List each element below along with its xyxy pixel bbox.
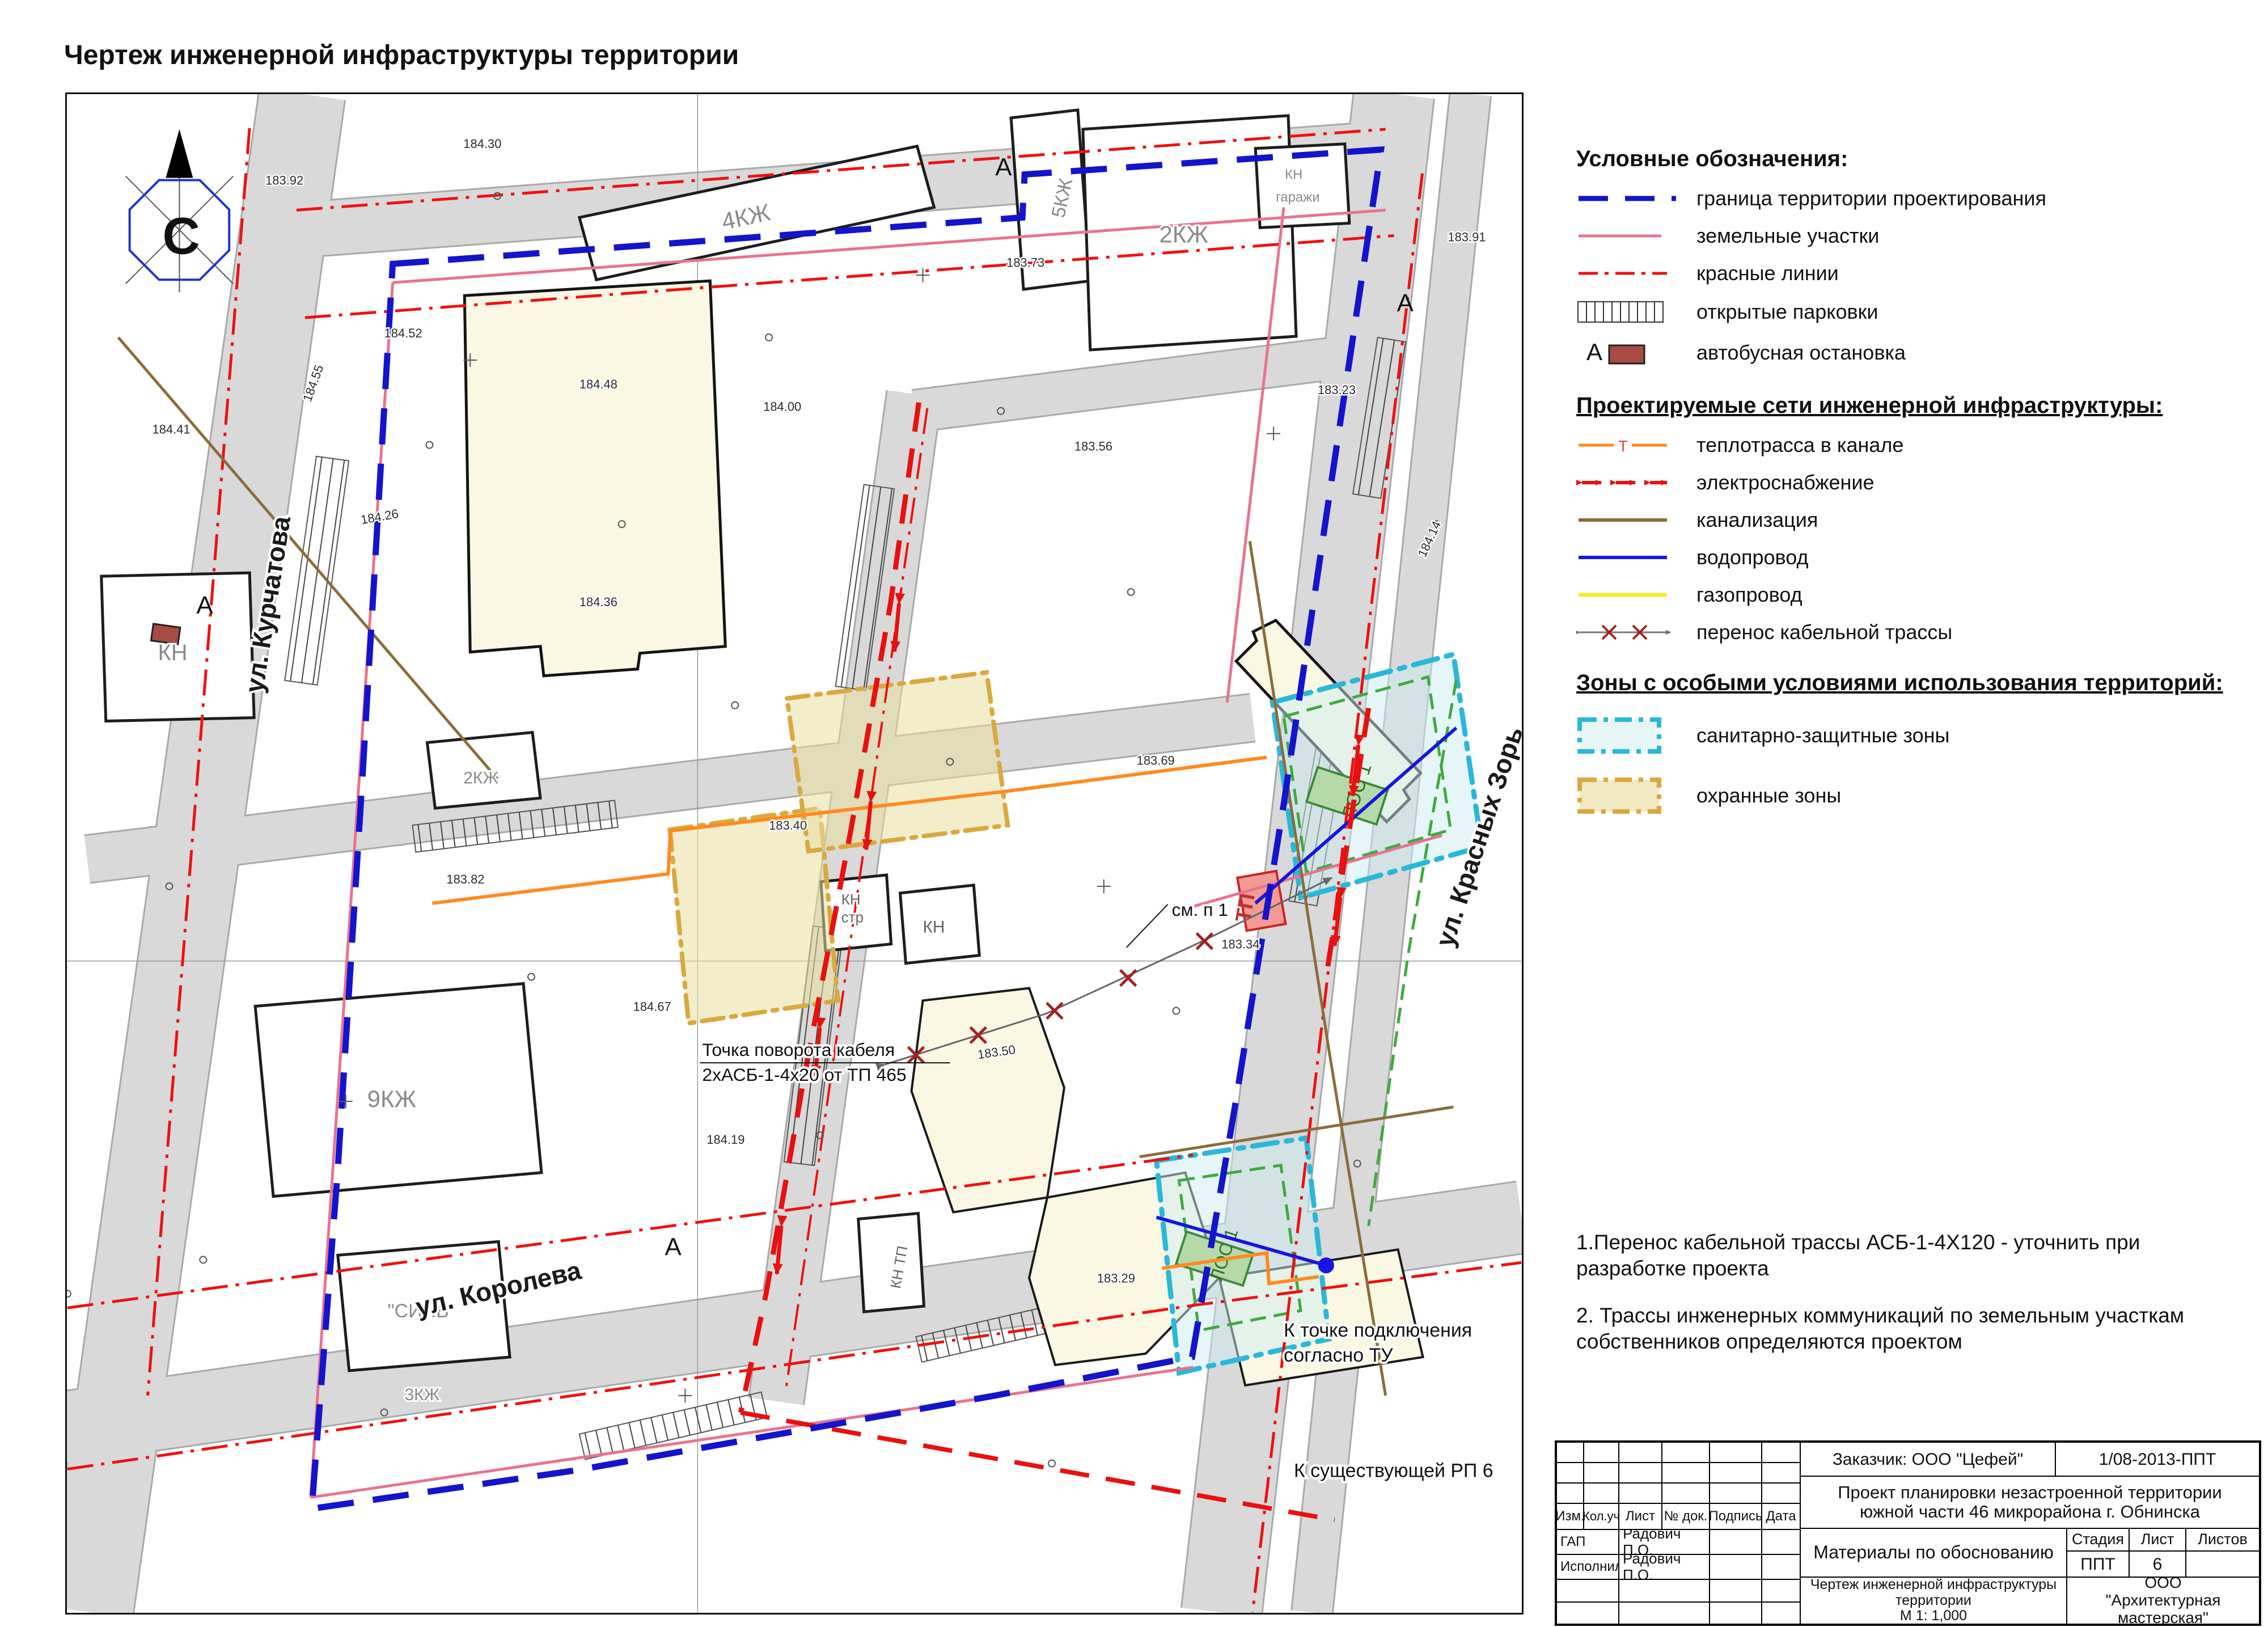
svg-text:Точка поворота кабеля: Точка поворота кабеля [702,1039,895,1060]
svg-text:184.00: 184.00 [763,400,801,414]
svg-text:184.19: 184.19 [706,1132,744,1147]
legend-section1-title: Условные обозначения: [1576,146,2262,172]
legend-item-heat: Т теплотрасса в канале [1576,433,2262,457]
legend-item-water: водопровод [1576,546,2262,569]
svg-text:КН: КН [158,640,188,665]
name-gap: Радович П.О. [1619,1529,1710,1554]
svg-text:2КЖ: 2КЖ [463,768,498,787]
svg-text:183.69: 183.69 [1137,753,1175,767]
role-gap: ГАП [1556,1529,1619,1554]
legend-item-busstop: А автобусная остановка [1576,339,2262,367]
doc-number-cell: 1/08-2013-ППТ [2055,1442,2259,1476]
title-block: Изм. Кол.уч Лист № док. Подпись Дата ГАП… [1555,1440,2261,1626]
col-data: Дата [1762,1503,1800,1529]
svg-text:гаражи: гаражи [1276,190,1320,205]
site-plan-map: ЛОС 1 ЛОС 1 ТП [65,92,1524,1615]
col-podpis: Подпись [1710,1503,1762,1529]
compass-north-letter: С [162,207,200,265]
stage-label-cell: Стадия [2067,1528,2129,1551]
svg-text:184.30: 184.30 [463,137,501,151]
legend-item-gas: газопровод [1576,583,2262,607]
col-ndok: № док. [1662,1503,1710,1529]
svg-text:КН: КН [923,918,945,937]
drawing-sheet: Чертеж инженерной инфраструктуры террито… [0,0,2268,1627]
page-title: Чертеж инженерной инфраструктуры террито… [64,40,739,71]
svg-text:183.92: 183.92 [265,174,303,188]
drawing-title-cell: Чертеж инженерной инфраструктуры террито… [1800,1577,2067,1624]
svg-text:183.29: 183.29 [1097,1271,1135,1285]
legend-panel: Условные обозначения: граница территории… [1576,146,2262,835]
legend-item-parking: открытые парковки [1576,299,2262,325]
water-line-icon [1576,551,1684,564]
legend-item-sewer: канализация [1576,508,2262,532]
legend-item-sanitary-zone: санитарно-защитные зоны [1576,715,2262,756]
note-1: 1.Перенос кабельной трассы АСБ-1-4Х120 -… [1576,1229,2254,1282]
col-koluch: Кол.уч [1584,1503,1619,1529]
sheets-value-cell [2186,1551,2259,1577]
legend-item-power: электроснабжение [1576,471,2262,495]
legend-section2-title: Проектируемые сети инженерной инфраструк… [1576,393,2262,419]
svg-text:А: А [1586,339,1602,365]
sewer-line-icon [1576,513,1684,527]
parcel-line-icon [1576,229,1684,243]
svg-text:согласно ТУ: согласно ТУ [1284,1345,1393,1366]
svg-text:3КЖ: 3КЖ [405,1385,440,1404]
svg-text:КН: КН [841,892,861,908]
bus-letter: А [1397,289,1414,317]
guard-zone-icon [1576,775,1684,816]
svg-text:184.52: 184.52 [384,326,422,340]
svg-text:183.56: 183.56 [1074,439,1112,454]
parking-hatch-icon [1576,299,1684,325]
svg-text:9КЖ: 9КЖ [367,1085,417,1112]
bus-letter: А [665,1233,682,1261]
sanitary-zone-icon [1576,715,1684,756]
legend-item-redlines: красные линии [1576,261,2262,285]
heat-line-icon: Т [1576,436,1684,454]
svg-text:184.67: 184.67 [633,999,671,1013]
note-2: 2. Трассы инженерных коммуникаций по зем… [1576,1303,2254,1355]
cable-transfer-icon [1576,622,1684,643]
col-izm: Изм. [1556,1503,1584,1529]
gas-line-icon [1576,588,1684,602]
svg-text:184.36: 184.36 [579,595,617,609]
sheets-label-cell: Листов [2186,1528,2259,1551]
svg-text:К существующей РП 6: К существующей РП 6 [1294,1460,1493,1482]
svg-text:184.48: 184.48 [579,377,617,391]
legend-item-guard-zone: охранные зоны [1576,775,2262,816]
sheet-value-cell: 6 [2129,1551,2186,1577]
materials-cell: Материалы по обоснованию [1800,1528,2067,1577]
site-plan-svg: ЛОС 1 ЛОС 1 ТП [67,94,1522,1613]
svg-text:184.41: 184.41 [153,422,191,437]
company-cell: ООО "Архитектурная мастерская" [2067,1577,2259,1624]
svg-text:2КЖ: 2КЖ [1160,221,1209,247]
svg-text:183.82: 183.82 [446,872,484,886]
customer-cell: Заказчик: ООО "Цефей" [1800,1442,2055,1476]
svg-text:183.23: 183.23 [1318,383,1356,397]
svg-text:КН: КН [1285,167,1302,183]
bus-stop-icon: А [1576,339,1684,367]
svg-text:стр: стр [841,910,864,926]
col-list: Лист [1619,1503,1662,1529]
stage-value-cell: ППТ [2067,1551,2129,1577]
legend-item-cable-transfer: перенос кабельной трассы [1576,620,2262,644]
svg-text:см. п 1: см. п 1 [1172,899,1229,920]
role-ispolnil: Исполнил [1556,1554,1619,1579]
svg-text:183.40: 183.40 [769,818,807,832]
legend-item-boundary: граница территории проектирования [1576,187,2262,210]
bus-letter: А [196,591,213,619]
notes-block: 1.Перенос кабельной трассы АСБ-1-4Х120 -… [1576,1229,2254,1375]
red-line-icon [1576,267,1684,280]
svg-text:Т: Т [1618,437,1628,454]
legend-item-parcels: земельные участки [1576,224,2262,248]
name-ispolnil: Радович П.О. [1619,1554,1710,1579]
svg-text:183.73: 183.73 [1006,255,1044,269]
legend-section3-title: Зоны с особыми условиями использования т… [1576,670,2262,696]
boundary-line-icon [1576,192,1684,205]
svg-text:183.91: 183.91 [1448,230,1486,244]
svg-text:2хАСБ-1-4х20 от ТП 465: 2хАСБ-1-4х20 от ТП 465 [702,1064,906,1085]
svg-text:183.34: 183.34 [1221,937,1259,952]
sheet-label-cell: Лист [2129,1528,2186,1551]
project-name-cell: Проект планировки незастроенной территор… [1800,1476,2259,1528]
bus-letter: А [995,154,1012,181]
power-line-icon [1576,474,1684,492]
svg-text:К точке подключения: К точке подключения [1284,1320,1472,1341]
